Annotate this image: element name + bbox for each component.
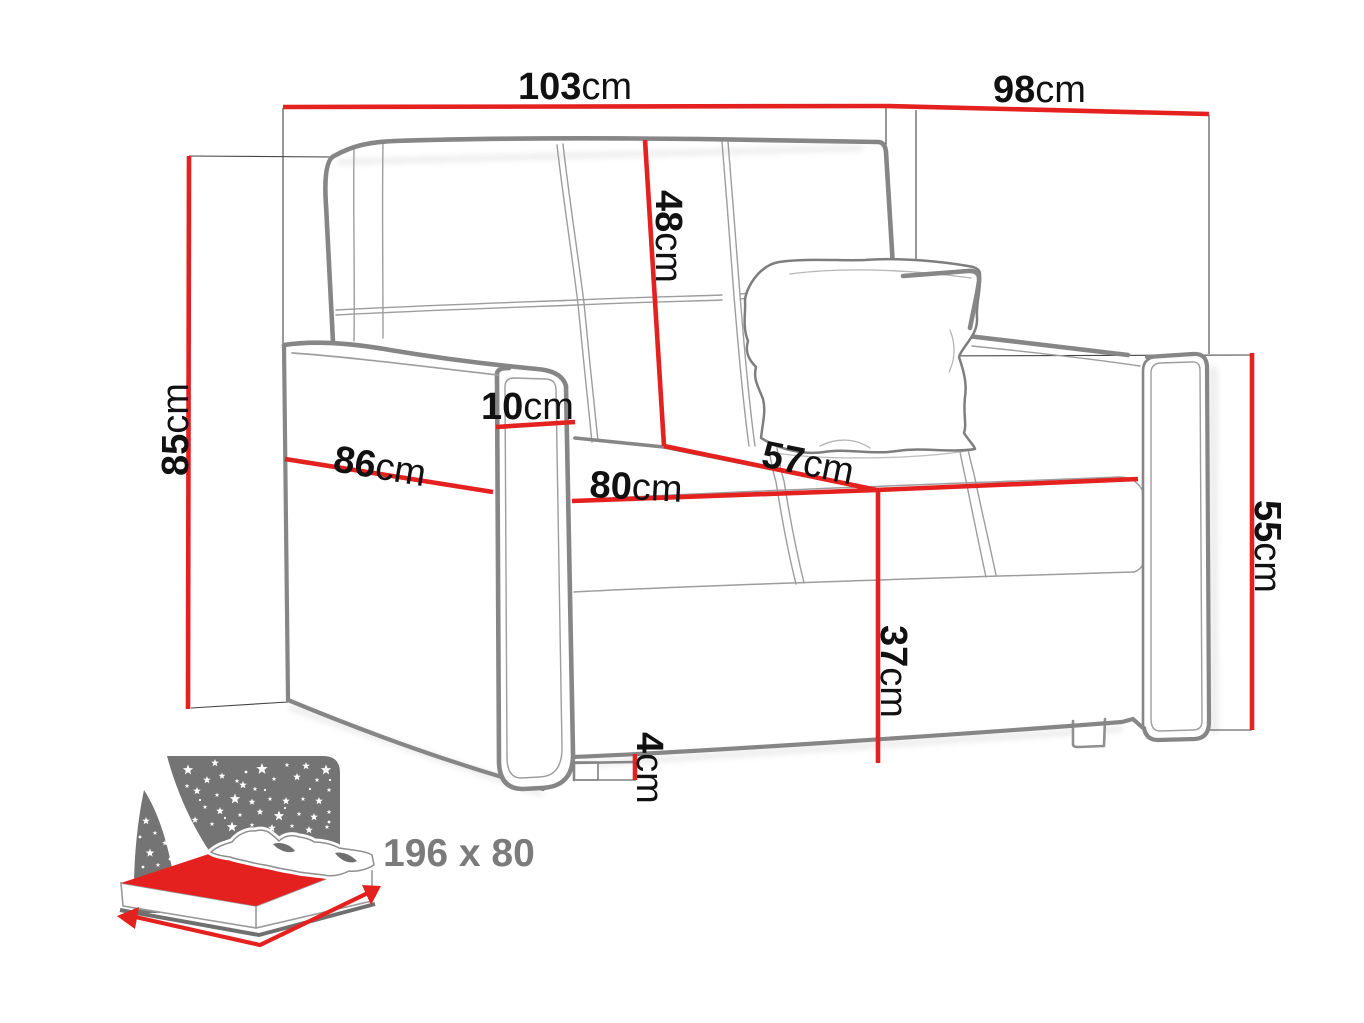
svg-text:4cm: 4cm	[628, 732, 670, 804]
svg-text:80cm: 80cm	[589, 464, 684, 511]
svg-text:85cm: 85cm	[155, 383, 197, 476]
svg-text:98cm: 98cm	[993, 69, 1086, 111]
svg-text:55cm: 55cm	[1246, 500, 1288, 593]
svg-text:86cm: 86cm	[331, 438, 430, 495]
svg-text:10cm: 10cm	[481, 386, 574, 428]
svg-text:103cm: 103cm	[518, 66, 632, 108]
svg-text:48cm: 48cm	[647, 190, 689, 283]
svg-text:196 x 80: 196 x 80	[383, 832, 535, 875]
svg-text:37cm: 37cm	[872, 625, 914, 718]
